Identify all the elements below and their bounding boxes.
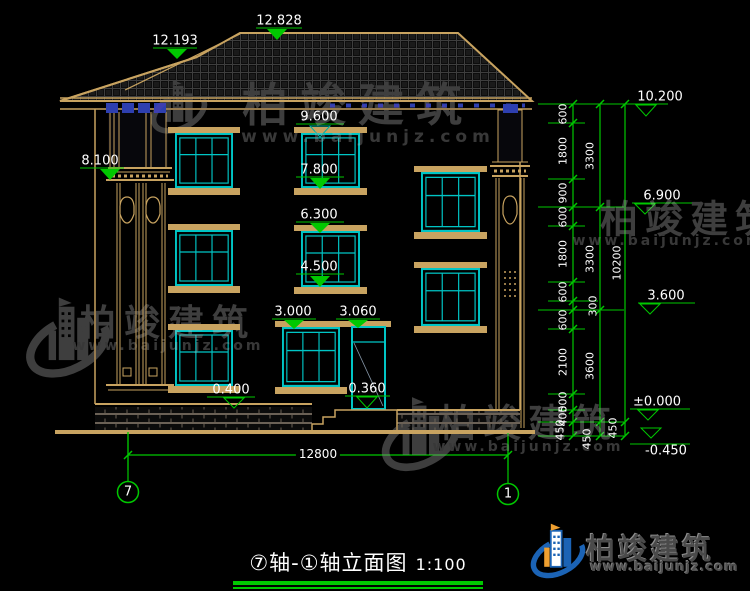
base-and-ground [55,404,535,434]
drawing-scale: 1:100 [416,555,467,574]
dim-inner-0: 600 [557,104,570,125]
pilaster-left [106,168,174,390]
window-center-3f [302,134,359,187]
dim-outer-1: 450 [607,418,620,439]
elevation-label-win3-top: 9.600 [300,110,337,125]
corbel [154,103,166,113]
elevation-marks-right [630,105,695,444]
title-underline-thin [233,587,483,589]
elevation-label-porch-col-top: 8.100 [81,154,118,169]
title-block: ⑦轴-①轴立面图1:100 [233,547,483,589]
elevation-label-ridge-main: 12.828 [256,14,302,29]
elevation-label-floor3: 6.900 [643,189,680,204]
window-center-1f [283,328,339,386]
corbel [122,103,134,113]
elevation-label-win2-sill: 4.500 [300,260,337,275]
brand-url: www.baijunjz.com [590,560,739,575]
elevation-label-door-sill: 0.360 [348,382,385,397]
pilaster-right [490,104,530,428]
brand-logo-icon [528,520,588,586]
corbel [138,103,150,113]
dim-inner-8: 2100 [557,348,570,376]
drawing-title: ⑦轴-①轴立面图 [249,551,407,575]
elevation-label-floor2: 3.600 [647,289,684,304]
stone-base-left [95,407,312,430]
dim-inner-1: 1800 [557,137,570,165]
dim-inner-2: 900 [557,183,570,204]
dim-outer-0: 10200 [611,246,624,281]
dim-inner-7: 600 [557,310,570,331]
corbel [503,104,518,113]
axis-number-1: 1 [504,487,512,502]
brand-logo-box: 柏竣建筑 www.baijunjz.com [528,520,748,586]
dim-middle-2: 3600 [584,352,597,380]
window-left-1f [176,331,232,385]
entry-steps [312,410,350,430]
dim-inner-3: 600 [557,207,570,228]
window-right-2f [422,269,479,325]
axis-number-7: 7 [124,485,132,500]
elevation-label-base-top: 0.400 [212,383,249,398]
window-left-3f [176,134,232,187]
elevation-label-door-top: 3.060 [339,305,376,320]
elevation-label-eave: 10.200 [637,90,683,105]
dim-inner-11: 450 [554,420,567,441]
elevation-label-ridge-porch: 12.193 [152,34,198,49]
title-underline-thick [233,581,483,585]
elevation-label-ground: ±0.000 [633,395,681,410]
dim-inner-5: 600 [557,282,570,303]
elevation-drawing-canvas: 柏竣建筑 www.baijunjz.com 柏竣建筑 www.baijunjz.… [0,0,750,591]
dim-middle-3: 450 [581,429,594,450]
roof [60,33,532,101]
dim-inner-4: 1800 [557,240,570,268]
stone-base-right [397,410,520,430]
elevation-label-win1-top: 3.000 [274,305,311,320]
dim-middle-1: 3300 [584,245,597,273]
dim-inner-6: 300 [587,296,600,317]
window-left-2f [176,231,232,285]
dim-overall-width: 12800 [296,447,340,461]
elevation-label-win3-sill: 7.800 [300,163,337,178]
ground-line [55,430,535,434]
elevation-label-win2-top: 6.300 [300,208,337,223]
window-right-3f [422,173,479,231]
dim-middle-0: 3300 [584,142,597,170]
corbel [106,103,118,113]
entry-platform [350,410,397,430]
elevation-label-site: -0.450 [645,444,687,459]
bottom-dimension [118,432,519,505]
